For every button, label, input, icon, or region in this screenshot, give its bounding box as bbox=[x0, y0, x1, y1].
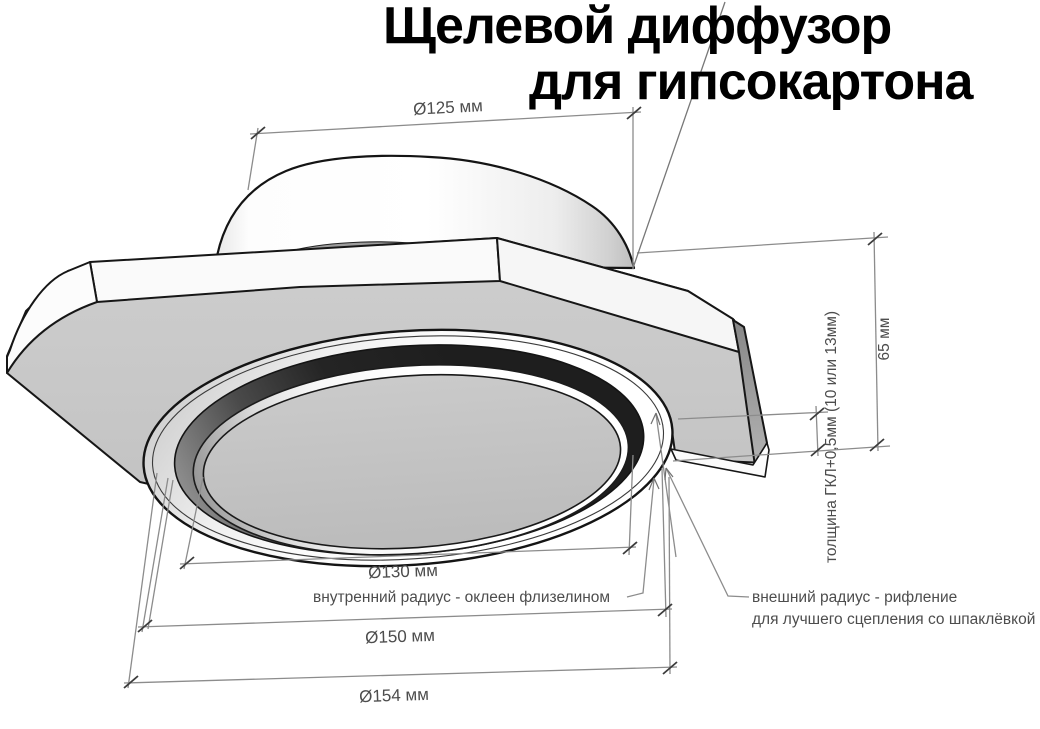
dimension-label-board-thickness: толщина ГКЛ+0,5мм (10 или 13мм) bbox=[823, 311, 841, 563]
annotation-outer-radius-line2: для лучшего сцепления со шпаклёвкой bbox=[752, 611, 1035, 629]
annotation-inner-radius: внутренний радиус - оклеен флизелином bbox=[313, 589, 610, 607]
dimension-label-outer-diameter: Ø154 мм bbox=[334, 684, 455, 708]
dimension-label-height: 65 мм bbox=[876, 303, 894, 375]
dimension-label-flange-diameter: Ø150 мм bbox=[340, 625, 461, 649]
page-title-line1: Щелевой диффузор bbox=[383, 0, 891, 52]
page-title-line2: для гипсокартона bbox=[529, 56, 972, 108]
dimension-label-inner-diameter: Ø130 мм bbox=[343, 560, 464, 584]
annotation-outer-radius-line1: внешний радиус - рифление bbox=[752, 589, 957, 607]
technical-drawing-page: Щелевой диффузор для гипсокартона Ø125 м… bbox=[0, 0, 1040, 729]
